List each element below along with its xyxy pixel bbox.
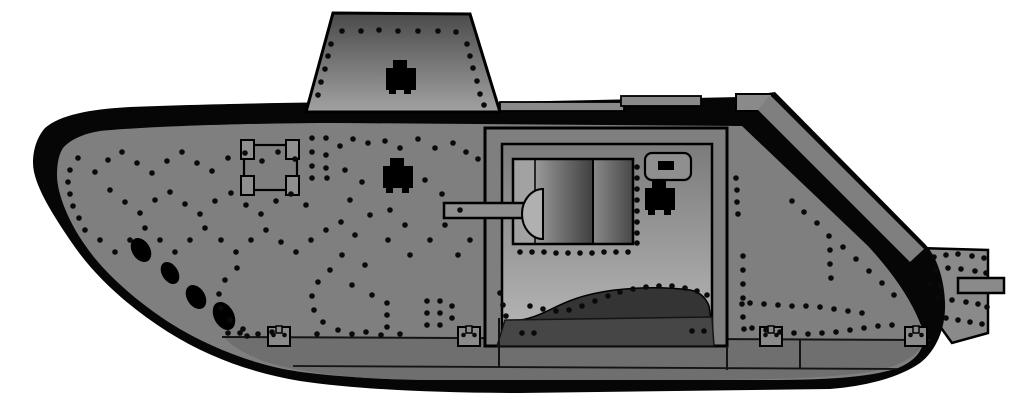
rivet [634,208,640,214]
rivet [323,135,329,141]
rivet [244,333,250,339]
rivet [828,275,834,281]
rivet [323,227,329,233]
rivet [435,28,441,34]
rivet [318,79,324,85]
rivet [634,186,640,192]
rivet [943,252,949,258]
rivet [527,303,533,309]
rivet [983,270,989,276]
rivet [819,330,825,336]
rivet [67,167,73,173]
rivet [831,306,837,312]
rivet [972,268,978,274]
rivet [337,143,343,149]
rivet [879,280,885,286]
rivet [975,301,981,307]
rivet [323,152,329,158]
rivet [817,304,823,310]
rivet [955,251,961,257]
rivet [67,191,73,197]
rivet [424,298,430,304]
rivet [967,319,973,325]
rivet [500,302,506,308]
rivet [656,283,662,289]
rivet [814,220,820,226]
rivet [704,292,710,298]
rivet [259,158,265,164]
rivet [449,315,455,321]
rivet [669,283,675,289]
rivet [315,279,321,285]
rivet [322,66,328,72]
rivet [861,325,867,331]
rivet [225,155,231,161]
rivet [937,283,943,289]
rivet [949,297,955,303]
rivet [222,277,228,283]
rivet [981,255,987,261]
rivet [847,327,853,333]
rivet [467,237,473,243]
rivet [519,330,525,336]
rivet [553,250,559,256]
rivet [382,138,388,144]
rivet [470,65,476,71]
rivet [740,253,746,259]
rivet [157,237,163,243]
rivet [324,175,330,181]
rivet [105,157,111,163]
track-bracket [268,326,290,346]
rivet [541,249,547,255]
rivet [402,222,408,228]
rivet [634,197,640,203]
rivet [65,179,71,185]
rivet [963,299,969,305]
rivet [134,160,140,166]
rivet [437,322,443,328]
rivet [579,303,585,309]
illustration-stage [0,0,1024,410]
rivet [464,41,470,47]
rivet [827,261,833,267]
rivet [634,175,640,181]
rivet [442,222,448,228]
rivet [315,92,321,98]
rivet [263,227,269,233]
rivet [258,211,264,217]
rivet [761,301,767,307]
rivet [775,302,781,308]
rivet [801,209,807,215]
rivet [803,303,809,309]
rivet [617,289,623,295]
rivet [553,308,559,314]
track-bracket [458,326,480,346]
rivet [194,160,200,166]
rivet [747,300,753,306]
rivet [122,199,128,205]
rivet [172,249,178,255]
rivet [474,78,480,84]
rivet [943,315,949,321]
rivet [933,267,939,273]
rivet [314,331,320,337]
rivet [384,324,390,330]
rivet [455,252,461,258]
rivet [741,326,747,332]
rivet [415,136,421,142]
rivet [309,135,315,141]
rivet [845,308,851,314]
rivet [540,306,546,312]
rivet [958,266,964,272]
rivet [613,249,619,255]
rivet [387,207,393,213]
rivet [233,249,239,255]
rivet [107,187,113,193]
rivet [309,175,315,181]
rivet [311,307,317,313]
rivet [439,191,445,197]
rivet [352,232,358,238]
rivet [734,187,740,193]
rivet [927,281,933,287]
rivet [216,291,222,297]
rivet [237,330,243,336]
rivet [225,330,231,336]
rivet [164,158,170,164]
rivet [531,330,537,336]
rivet [859,310,865,316]
rivet [422,177,428,183]
rivet [76,215,82,221]
track-bracket [905,326,927,346]
rivet [228,190,234,196]
rivet [363,329,369,335]
rivet [349,282,355,288]
rivet [179,149,185,155]
rivet [328,41,334,47]
rivet [826,233,832,239]
rivet [278,239,284,245]
rivet [376,27,382,33]
rivet [275,149,281,155]
rivet [384,312,390,318]
rivet [309,163,315,169]
rivet [481,102,487,108]
rivet [634,219,640,225]
rivet [689,328,695,334]
rivet [735,211,741,217]
rivet [248,237,254,243]
rivet [789,303,795,309]
rivet [234,265,240,271]
rivet [243,202,249,208]
rivet [701,328,707,334]
rivet [415,28,421,34]
rivet [634,164,640,170]
rivet [187,237,193,243]
gun-barrel [444,203,524,218]
rivet [362,262,368,268]
rivet [889,322,895,328]
rivet [325,53,331,59]
rivet [589,250,595,256]
vision-port [645,153,691,180]
rivet [791,330,797,336]
rivet [749,325,755,331]
rivet [308,237,314,243]
rivet [202,225,208,231]
rivet [339,28,345,34]
rivet [212,198,218,204]
rivet [450,140,456,146]
rivet [293,249,299,255]
rivet [529,249,535,255]
rivet [866,268,872,274]
rivet [359,179,365,185]
rivet [477,91,483,97]
rivet [449,303,455,309]
rivet [342,167,348,173]
rivet [369,292,375,298]
rivet [577,250,583,256]
rivet [309,149,315,155]
rivet [453,29,459,35]
rivet [218,305,224,311]
rivet [75,155,81,161]
rivet [931,254,937,260]
rivet [358,28,364,34]
driver-cab [306,13,500,112]
rivet [634,240,640,246]
rivet [269,329,275,335]
rivet [682,285,688,291]
rivet [152,197,158,203]
rivet [350,136,356,142]
rivet [827,247,833,253]
rivet [739,301,745,307]
rivet [218,237,224,243]
rivet [566,307,572,313]
tow-bar [958,278,1004,293]
rivet [643,284,649,290]
rivet [347,197,353,203]
rivet [397,145,403,151]
rivet [475,156,481,162]
rivet [634,230,640,236]
rivet [805,331,811,337]
rivet [424,322,430,328]
rivet [840,244,846,250]
rivet [891,292,897,298]
rivet [457,207,463,213]
rivet [437,310,443,316]
rivet [424,310,430,316]
rivet [97,237,103,243]
rivet [605,293,611,299]
rivet [503,313,509,319]
rivet [763,327,769,333]
rivet [437,298,443,304]
rivet [875,323,881,329]
rivet [777,329,783,335]
rivet [427,237,433,243]
rivet [497,290,503,296]
rivet [112,249,118,255]
rivet [789,198,795,204]
rivet [407,252,413,258]
rivet [167,189,173,195]
rivet [592,298,598,304]
rivet [209,168,215,174]
rivet [339,252,345,258]
rivet [227,317,233,323]
rivet [137,210,143,216]
rivet [625,249,631,255]
roof-hatch-strip [500,102,624,111]
rivet [384,300,390,306]
rivet [367,212,373,218]
rivet [833,329,839,335]
rivet [273,198,279,204]
rivet [740,281,746,287]
rivet [935,295,941,301]
rivet [323,165,329,171]
rivet [255,331,261,337]
rivet [945,265,951,271]
rivet [70,203,76,209]
rivet [303,202,309,208]
rivet [740,267,746,273]
rivet [955,317,961,323]
rivet [853,256,859,262]
rivet [327,267,333,273]
rivet [309,293,315,299]
rivet [338,219,344,225]
rivet [242,150,248,156]
rivet [149,170,155,176]
rivet [740,295,746,301]
rivet [365,140,371,146]
rivet [734,199,740,205]
rivet [630,286,636,292]
rivet [740,314,746,320]
rivet [182,201,188,207]
rivet [397,331,403,337]
rivet [92,169,98,175]
rivet [395,28,401,34]
rivet [127,237,133,243]
track-bracket [760,326,782,346]
roof-hatch-strip-raised [621,96,701,106]
rivet [432,145,438,151]
rivet [142,225,148,231]
rivet [349,331,355,337]
rivet [565,250,571,256]
rivet [517,249,523,255]
tank-illustration [0,0,1024,410]
rivet [694,288,700,294]
rivet [82,227,88,233]
rivet [979,321,985,327]
rivet [463,149,469,155]
rivet [467,53,473,59]
rivet [288,191,294,197]
rivet [733,175,739,181]
rivet [601,249,607,255]
rivet [320,319,326,325]
sponson [444,128,727,346]
rivet [984,304,990,310]
rivet [378,332,384,338]
rivet [969,253,975,259]
sponson-skirt-band [497,317,714,346]
rivet [385,237,391,243]
rivet [119,149,125,155]
rivet [292,156,298,162]
rivet [335,327,341,333]
rivet [197,211,203,217]
